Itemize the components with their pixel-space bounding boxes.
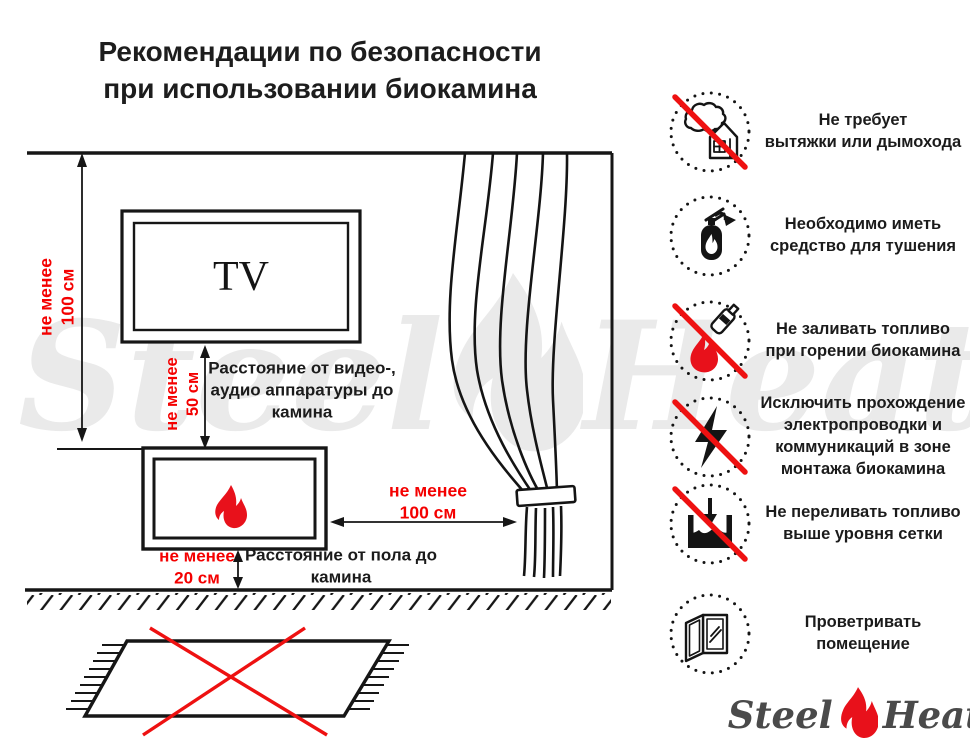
rule-text-ventilate: Проветривать помещение bbox=[754, 612, 966, 656]
open-window-icon bbox=[686, 615, 727, 661]
extinguisher-icon bbox=[666, 192, 754, 280]
rule-row-no-refuel: Не заливать топливо при горении биокамин… bbox=[666, 297, 966, 385]
infographic-page: Steel Heat Рекомендации по безопасности … bbox=[0, 0, 970, 749]
fuel-bottle-icon bbox=[710, 302, 741, 334]
ventilate-room-icon bbox=[666, 590, 754, 678]
no-refuel-while-burning-icon bbox=[666, 297, 754, 385]
carpet bbox=[66, 628, 409, 735]
rule-text-no-overfill: Не переливать топливо выше уровня сетки bbox=[754, 502, 966, 546]
tv-clearance-caption: Расстояние от видео-, аудио аппаратуры д… bbox=[208, 357, 395, 422]
tv-clearance-label: не менее 50 см bbox=[162, 357, 204, 430]
no-flue-icon bbox=[666, 88, 754, 176]
floor-clearance-caption: Расстояние от пола до камина bbox=[245, 544, 437, 588]
curtain-clearance-label: не менее 100 см bbox=[389, 480, 467, 525]
rule-text-no-refuel: Не заливать топливо при горении биокамин… bbox=[754, 319, 966, 363]
tv-label: TV bbox=[213, 253, 269, 301]
brand-logo: Steel Heat bbox=[744, 686, 966, 744]
rule-row-no-flue: Не требует вытяжки или дымохода bbox=[666, 88, 966, 176]
wall-clearance-label: не менее 100 см bbox=[35, 258, 80, 336]
rule-text-extinguisher: Необходимо иметь средство для тушения bbox=[754, 214, 966, 258]
floor-clearance-label: не менее 20 см bbox=[159, 545, 235, 589]
logo-flame-icon bbox=[838, 686, 878, 739]
floor-hatching bbox=[27, 593, 611, 610]
rule-text-no-flue: Не требует вытяжки или дымохода bbox=[754, 110, 966, 154]
no-wiring-in-mount-zone-icon bbox=[666, 393, 754, 481]
logo-heat: Heat bbox=[883, 693, 970, 737]
rule-row-extinguisher: Необходимо иметь средство для тушения bbox=[666, 192, 966, 280]
rule-text-no-wiring: Исключить прохождение электропроводки и … bbox=[754, 393, 966, 481]
rule-row-ventilate: Проветривать помещение bbox=[666, 590, 966, 678]
rule-row-no-wiring: Исключить прохождение электропроводки и … bbox=[666, 393, 966, 481]
no-overfill-icon bbox=[666, 480, 754, 568]
rule-row-no-overfill: Не переливать топливо выше уровня сетки bbox=[666, 480, 966, 568]
logo-steel: Steel bbox=[728, 693, 833, 737]
red-cross-icon bbox=[675, 402, 745, 472]
curtain bbox=[450, 153, 576, 578]
page-title: Рекомендации по безопасности при использ… bbox=[15, 34, 625, 108]
curtain-tie bbox=[517, 486, 576, 506]
fireplace-outline bbox=[143, 448, 326, 549]
